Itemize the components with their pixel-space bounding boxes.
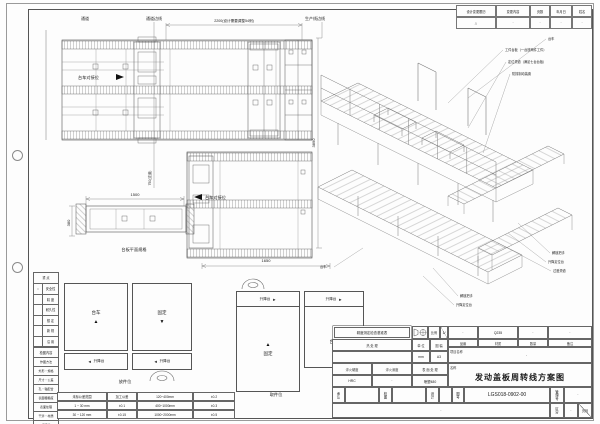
- checkpoint-row: 想 定: [33, 316, 59, 327]
- callout-trolley-bottom: 台车: [320, 264, 326, 269]
- check-label: 精 度: [43, 295, 58, 305]
- dim-380: 380: [66, 219, 71, 226]
- remark-value: ·: [548, 326, 592, 339]
- approve-signature: [345, 387, 379, 403]
- check-mark: ○: [34, 284, 43, 294]
- signature-strip: ·: [332, 403, 550, 418]
- part-no-value: ·: [448, 326, 478, 339]
- checkpoint-row: 精 度: [33, 295, 59, 306]
- tol-cell: 未标公差范围: [57, 392, 107, 401]
- lift-strip-1: ◄ 升降台: [64, 353, 128, 370]
- callout-trolley-top: 台车: [548, 36, 554, 41]
- revision-header: 变更内容: [496, 5, 530, 17]
- isometric-view-drawing: [318, 28, 598, 320]
- drawing-name-label: 名称: [450, 365, 590, 370]
- trolley-label: 台车: [92, 310, 101, 316]
- lift-label: 升降台: [94, 359, 105, 364]
- side-view-caption: 台板平面规格: [121, 246, 147, 253]
- unit-value: mm: [412, 351, 430, 363]
- tol-cell: 400~1000mm: [137, 401, 193, 410]
- callout-unlock-handle-2: 解锁把手: [460, 293, 473, 298]
- management-no-label: 管理号: [550, 387, 564, 403]
- qty-value: ·: [518, 326, 548, 339]
- check-mark: [34, 337, 43, 347]
- binding-hole-icon: [12, 150, 23, 161]
- arrow-left-icon: ◄: [154, 359, 158, 364]
- arrow-up-icon: ▲: [266, 342, 271, 348]
- check-label: 沿 用: [43, 337, 58, 347]
- passage-label: 通道: [81, 15, 89, 21]
- remark-label: 备注: [548, 339, 592, 347]
- sheet-size-value: A3: [430, 351, 448, 363]
- drawing-sheet: 设计变更履历 变更内容 页数 年月日 姓名 △ · · · ·: [0, 0, 600, 424]
- tol-cell: 30 ~ 120 mm: [57, 410, 107, 419]
- tol-cell: ±0.5: [193, 410, 235, 419]
- hardness-value: HRC: [332, 375, 372, 387]
- check-item: 孔・轴配合: [33, 385, 59, 394]
- sheet-size-label: 图 幅: [430, 339, 448, 351]
- arrow-left-icon: ◄: [88, 359, 92, 364]
- check-item: 尺寸・公差: [33, 376, 59, 385]
- load-position-label: 放件位: [95, 379, 155, 385]
- inspection-stamp: 精度测定检查基准表: [334, 327, 410, 338]
- approve-label: 承认: [332, 387, 345, 403]
- checkpoint-table: 重 点 ○安全性 精 度 耐久性 想 定 新 规 沿 用 检图内容 作图方法 外…: [33, 272, 59, 424]
- scale-label: 比例: [428, 326, 440, 339]
- check-label: 想 定: [43, 316, 58, 326]
- page-no-cell: 页码: [578, 403, 592, 418]
- production-edge-label: 生产线边线: [305, 15, 325, 21]
- surface-label: 表 面 处 理: [412, 363, 448, 375]
- dim-750-aisle: 750(过道): [147, 171, 152, 186]
- check-item: 外形・规格: [33, 367, 59, 376]
- fixed-label: 固定: [264, 351, 273, 357]
- passage-edge-label: 通道边线: [146, 15, 162, 21]
- check-item: 作图方法: [33, 358, 59, 367]
- title-block: 精度测定检查基准表 比例 1/ 热 处 理 单 位 图 幅 mm A3 淬火硬度…: [332, 326, 592, 418]
- callout-guide-rail: 定位滑道（满足七台台板）: [508, 59, 546, 64]
- revision-table: 设计变更履历 变更内容 页数 年月日 姓名 △ · · · ·: [456, 5, 592, 29]
- tol-cell: 1000~2000mm: [137, 410, 193, 419]
- class-label: 区分: [550, 403, 564, 418]
- callout-pallet: 工件台板（一台放两件工件）: [505, 47, 546, 52]
- revision-header: 设计变更履历: [456, 5, 496, 17]
- design-signature: [439, 387, 452, 403]
- arrow-right-icon: ►: [338, 297, 342, 302]
- lift-label: 升降台: [326, 297, 337, 302]
- callout-brake: 防撞制动装置: [512, 71, 531, 76]
- fixed-label: 固定: [158, 310, 167, 316]
- check-label: 安全性: [43, 284, 58, 294]
- schematic-fixed-box-1: 固定 ▼: [132, 283, 192, 351]
- tol-cell: ±0.2: [193, 392, 235, 401]
- lift-label: 升降台: [260, 297, 271, 302]
- scale-value: 1/: [440, 326, 448, 339]
- depth-label: 淬火深度: [372, 363, 412, 375]
- callout-lift-positioner: 升降定位台: [548, 259, 564, 264]
- dim-1500: 1500: [131, 192, 141, 197]
- part-no-label: 品番: [448, 339, 478, 347]
- material-value: Q235: [478, 326, 518, 339]
- operator-icon: [240, 276, 266, 290]
- checkpoint-row: 沿 用: [33, 337, 59, 348]
- check-mark: [34, 295, 43, 305]
- checkpoint-row: ○安全性: [33, 284, 59, 295]
- revision-header: 年月日: [550, 5, 572, 17]
- project-name-cell: 项目名称 ·: [448, 347, 592, 363]
- drawing-no-label: 图号: [452, 387, 464, 403]
- check-label: 耐久性: [43, 305, 58, 315]
- arrow-up-icon: ▲: [94, 319, 99, 325]
- revision-header: 姓名: [572, 5, 592, 17]
- plan-view-drawing: 通道 通道边线 生产线边线 2200(设计需要调整54例) 台车对接位 3890…: [30, 10, 345, 270]
- class-value: ·: [564, 403, 578, 418]
- tol-cell: 1 ~ 30 mm: [57, 401, 107, 410]
- unit-label: 单 位: [412, 339, 430, 351]
- dock-label-lower: 台车对接位: [205, 194, 226, 201]
- check-mark: [34, 316, 43, 326]
- heat-treatment-label: 热 处 理: [332, 339, 412, 351]
- tol-cell: 加工公差: [107, 392, 137, 401]
- schematic-trolley-box-1: 台车 ▲: [64, 283, 128, 351]
- check-label: 新 规: [43, 326, 58, 336]
- check-label: 校图: [379, 387, 392, 403]
- check-mark: [34, 305, 43, 315]
- depth-value: ·: [372, 375, 412, 387]
- surface-value: 喷塑480: [412, 375, 448, 387]
- material-label: 材质: [478, 339, 518, 347]
- drawing-name-cell: 名称 发动盖板周转线方案图: [448, 363, 592, 387]
- callout-transition-slide: 过渡滑道: [553, 268, 566, 273]
- project-name-value: ·: [526, 353, 527, 358]
- check-item: 表面粗糙度: [33, 394, 59, 403]
- callout-lift-positioner-2: 升降定位台: [456, 302, 472, 307]
- pick-position-label: 取件位: [236, 392, 316, 398]
- dock-arrow-right-icon: [116, 74, 124, 80]
- hardness-label: 淬火硬度: [332, 363, 372, 375]
- dim-2200: 2200(设计需要调整54例): [214, 18, 254, 23]
- heat-treatment-value: [332, 351, 412, 363]
- callout-unlock-handle: 解锁把手: [552, 250, 565, 255]
- check-signature: [392, 387, 426, 403]
- arrow-right-icon: ►: [272, 297, 276, 302]
- check-item: 表面处理: [33, 403, 59, 412]
- tol-cell: 120~400mm: [137, 392, 193, 401]
- design-label: 设计: [426, 387, 439, 403]
- qty-label: 数量: [518, 339, 548, 347]
- tol-cell: ±0.15: [107, 410, 137, 419]
- arrow-down-icon: ▼: [160, 319, 165, 325]
- drawing-title: 发动盖板周转线方案图: [475, 372, 565, 383]
- tol-cell: ±0.1: [107, 401, 137, 410]
- dim-3890: 3890: [311, 138, 316, 148]
- checkpoint-row: 新 规: [33, 326, 59, 337]
- revision-header: 页数: [530, 5, 550, 17]
- checkpoint-row: 耐久性: [33, 305, 59, 316]
- tol-cell: ±0.3: [193, 401, 235, 410]
- third-angle-projection-icon: [412, 326, 428, 339]
- dock-label-top: 台车对接位: [78, 74, 99, 81]
- checkpoint-header: 重 点: [33, 272, 59, 284]
- check-section-header: 检图内容: [33, 347, 59, 358]
- check-item: 干涉・材质: [33, 412, 59, 421]
- drawing-no-value: LGS018-0902-00: [464, 387, 550, 403]
- dim-1650: 1650: [262, 258, 272, 263]
- project-name-label: 项目名称: [450, 349, 463, 354]
- management-no-value: ·: [564, 387, 592, 403]
- check-mark: [34, 326, 43, 336]
- tolerance-table: 未标公差范围 加工公差 120~400mm ±0.2 1 ~ 30 mm ±0.…: [57, 392, 235, 419]
- lift-label: 升降台: [160, 359, 171, 364]
- binding-hole-icon: [12, 262, 23, 273]
- schematic-fixed-box-2: ▲ 固定: [236, 306, 300, 392]
